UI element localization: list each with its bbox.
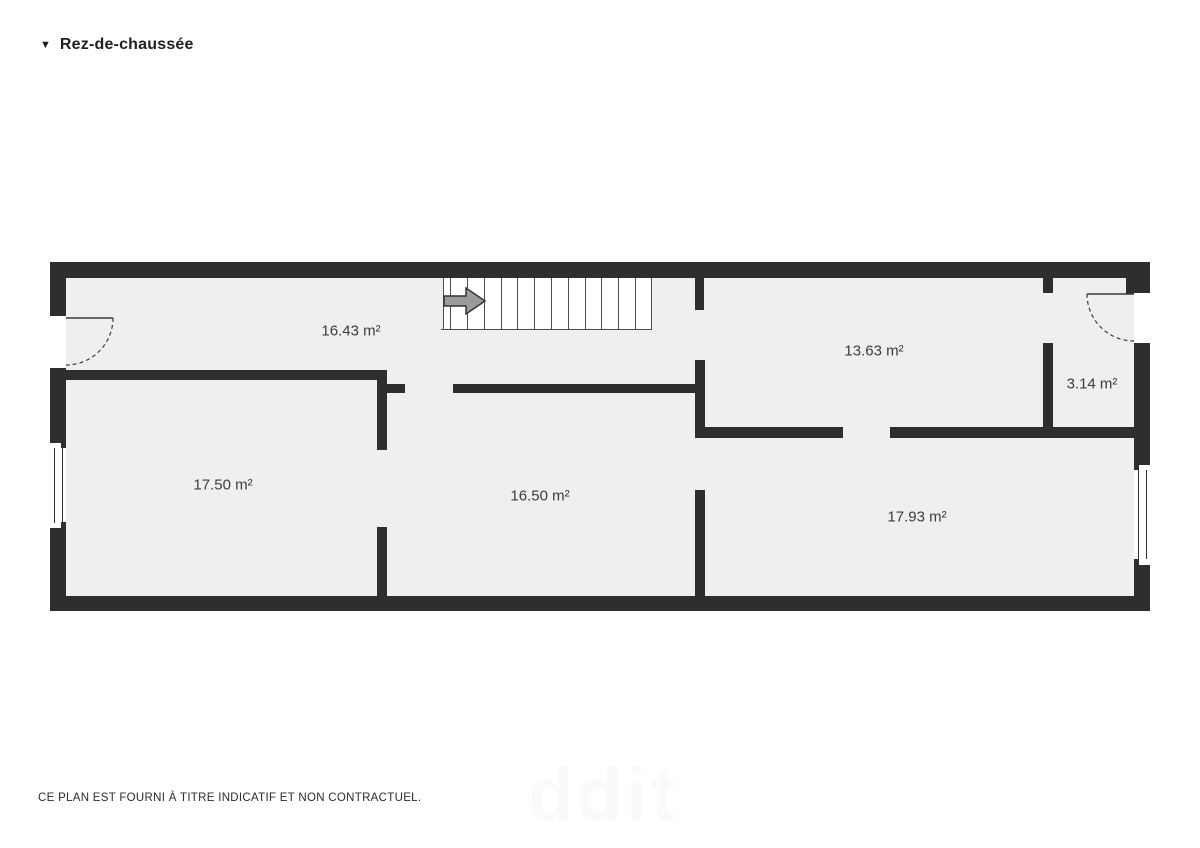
room-area-label: 17.50 m²: [193, 477, 252, 494]
room-area-label: 17.93 m²: [887, 509, 946, 526]
room-area-label: 13.63 m²: [844, 343, 903, 360]
room-area-label: 3.14 m²: [1067, 376, 1118, 393]
floor-plan-page: ▼ Rez-de-chaussée 16.43 m²13.63 m²3.14 m…: [0, 0, 1200, 848]
room-area-label: 16.43 m²: [321, 323, 380, 340]
room-labels-layer: 16.43 m²13.63 m²3.14 m²17.50 m²16.50 m²1…: [0, 0, 1200, 848]
watermark: ddit: [528, 752, 680, 837]
disclaimer-text: CE PLAN EST FOURNI À TITRE INDICATIF ET …: [38, 792, 421, 804]
room-area-label: 16.50 m²: [510, 488, 569, 505]
